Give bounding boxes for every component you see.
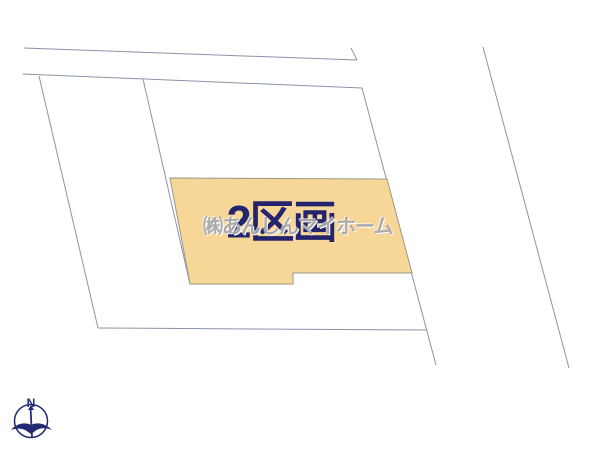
block-left-boundary: [39, 76, 98, 328]
road-edge-bottom-line: [23, 74, 362, 88]
east-boundary-line: [483, 47, 569, 368]
road-edge-end-tick: [351, 48, 357, 60]
lot-layout-map: 2区画 ㈱あんしんマイホーム N: [0, 0, 600, 449]
north-compass-icon: N: [8, 393, 56, 445]
block-bottom-boundary: [98, 328, 426, 330]
road-edge-top-line: [24, 48, 357, 60]
company-watermark: ㈱あんしんマイホーム: [203, 210, 392, 239]
